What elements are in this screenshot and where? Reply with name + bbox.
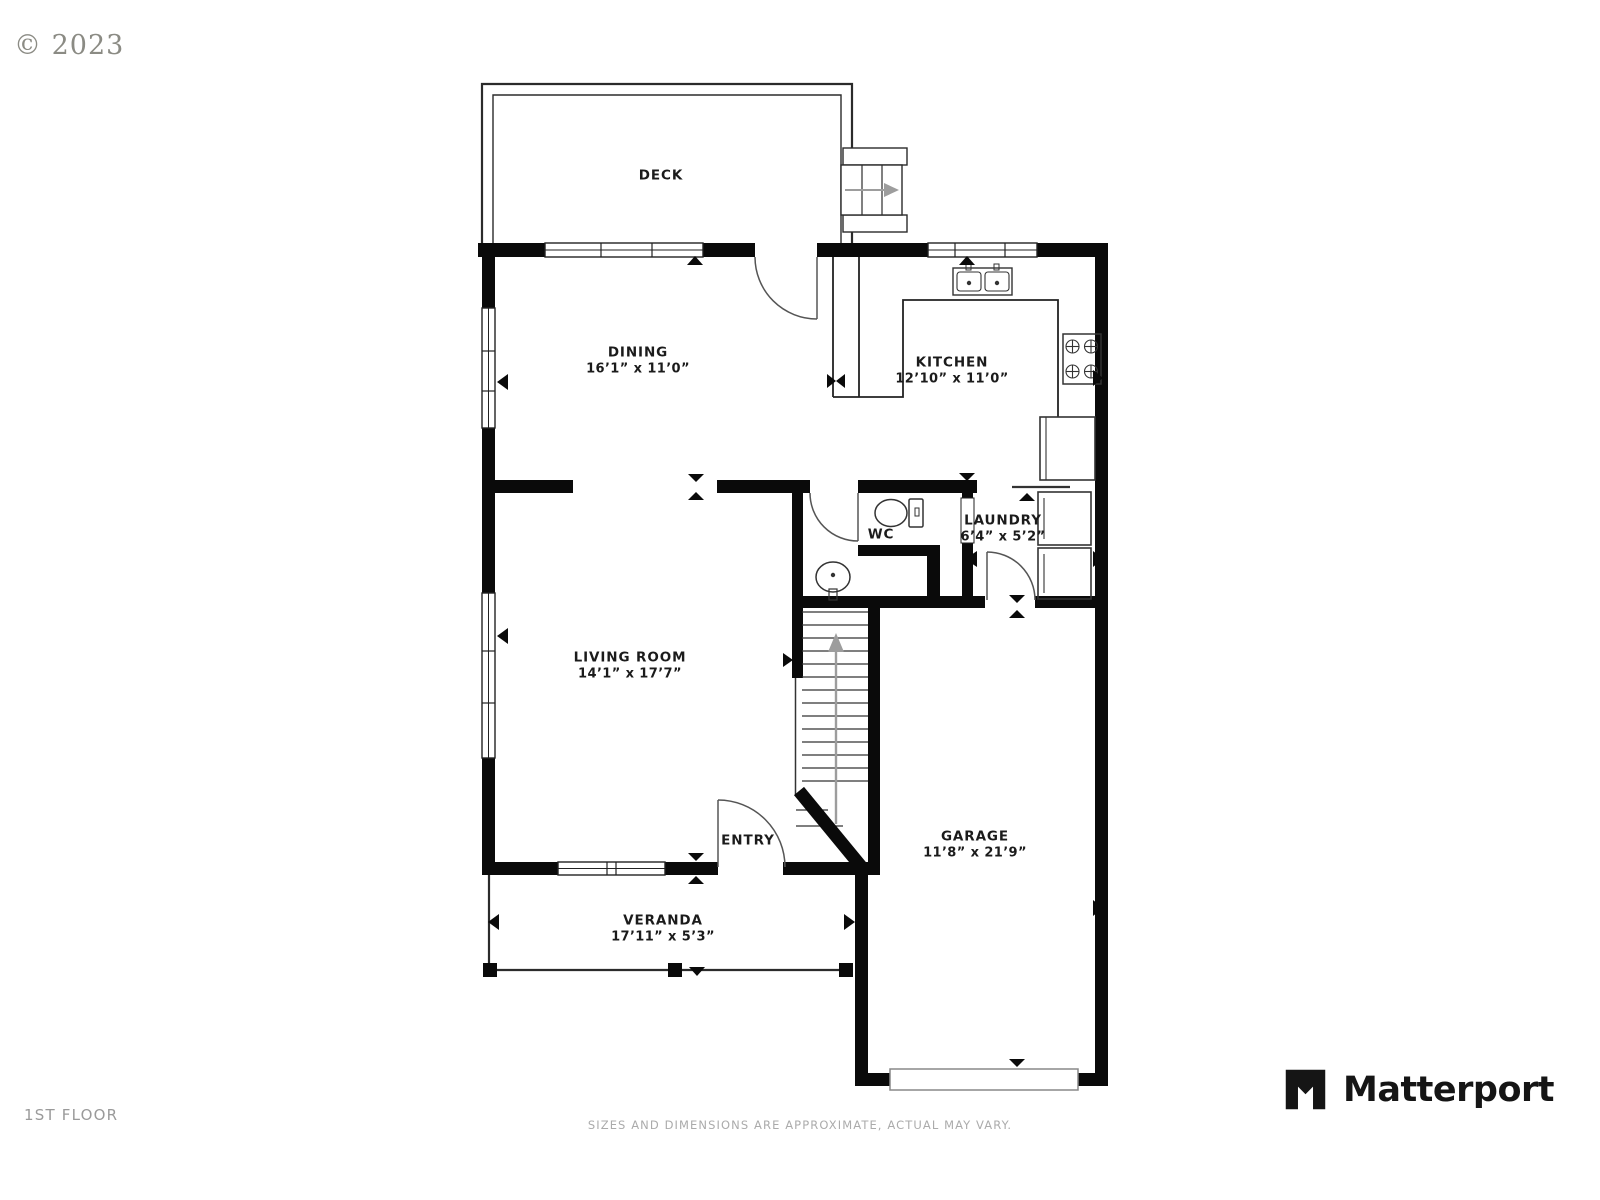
room-label-laundry: LAUNDRY 6’4” x 5’2”	[961, 514, 1046, 545]
wc-door-swing	[810, 493, 858, 541]
veranda-post	[839, 963, 853, 977]
room-label-garage: GARAGE 11’8” x 21’9”	[923, 830, 1027, 861]
room-name: GARAGE	[923, 830, 1027, 846]
deck-stairs	[841, 148, 907, 232]
window	[482, 593, 495, 758]
room-name: LAUNDRY	[961, 514, 1046, 530]
room-label-kitchen: KITCHEN 12’10” x 11’0”	[895, 356, 1008, 387]
room-name: VERANDA	[611, 914, 715, 930]
window	[928, 243, 1037, 257]
dryer	[1038, 548, 1091, 599]
refrigerator	[1012, 417, 1095, 487]
room-label-deck: DECK	[639, 168, 683, 184]
toilet	[875, 499, 923, 527]
room-name: WC	[868, 527, 895, 543]
veranda-post	[483, 963, 497, 977]
washer	[1038, 492, 1091, 545]
brand-wordmark: Matterport	[1343, 1070, 1554, 1110]
room-dimensions: 14’1” x 17’7”	[574, 666, 687, 682]
room-dimensions: 11’8” x 21’9”	[923, 845, 1027, 861]
floor-plan-drawing	[0, 0, 1600, 1200]
floor-plan-page: © 2023	[0, 0, 1600, 1200]
room-label-wc: WC	[868, 527, 895, 543]
window	[545, 243, 703, 257]
staircase	[796, 612, 869, 870]
matterport-cube-icon	[1282, 1066, 1329, 1113]
brand-logo: Matterport	[1282, 1066, 1554, 1113]
garage-door	[890, 1069, 1078, 1090]
windows	[482, 243, 1037, 875]
room-name: KITCHEN	[895, 356, 1008, 372]
room-name: LIVING ROOM	[574, 651, 687, 667]
room-name: ENTRY	[721, 833, 775, 849]
room-name: DECK	[639, 168, 683, 184]
room-label-dining: DINING 16’1” x 11’0”	[586, 346, 690, 377]
room-dimensions: 6’4” x 5’2”	[961, 529, 1046, 545]
room-name: DINING	[586, 346, 690, 362]
room-label-veranda: VERANDA 17’11” x 5’3”	[611, 914, 715, 945]
room-label-entry: ENTRY	[721, 833, 775, 849]
kitchen-sink	[953, 264, 1012, 295]
under-stair-wall	[799, 791, 864, 870]
deck-outline	[482, 84, 852, 243]
kitchen-counter	[833, 257, 1058, 417]
window	[558, 862, 665, 875]
room-dimensions: 17’11” x 5’3”	[611, 929, 715, 945]
room-label-living-room: LIVING ROOM 14’1” x 17’7”	[574, 651, 687, 682]
room-dimensions: 16’1” x 11’0”	[586, 361, 690, 377]
veranda-post	[668, 963, 682, 977]
window	[482, 308, 495, 428]
laundry-door-swing	[987, 552, 1035, 600]
floor-label: 1ST FLOOR	[24, 1106, 118, 1124]
disclaimer-text: SIZES AND DIMENSIONS ARE APPROXIMATE, AC…	[588, 1118, 1012, 1132]
deck-door-swing	[755, 257, 817, 319]
wc-sink	[816, 562, 850, 600]
room-dimensions: 12’10” x 11’0”	[895, 371, 1008, 387]
